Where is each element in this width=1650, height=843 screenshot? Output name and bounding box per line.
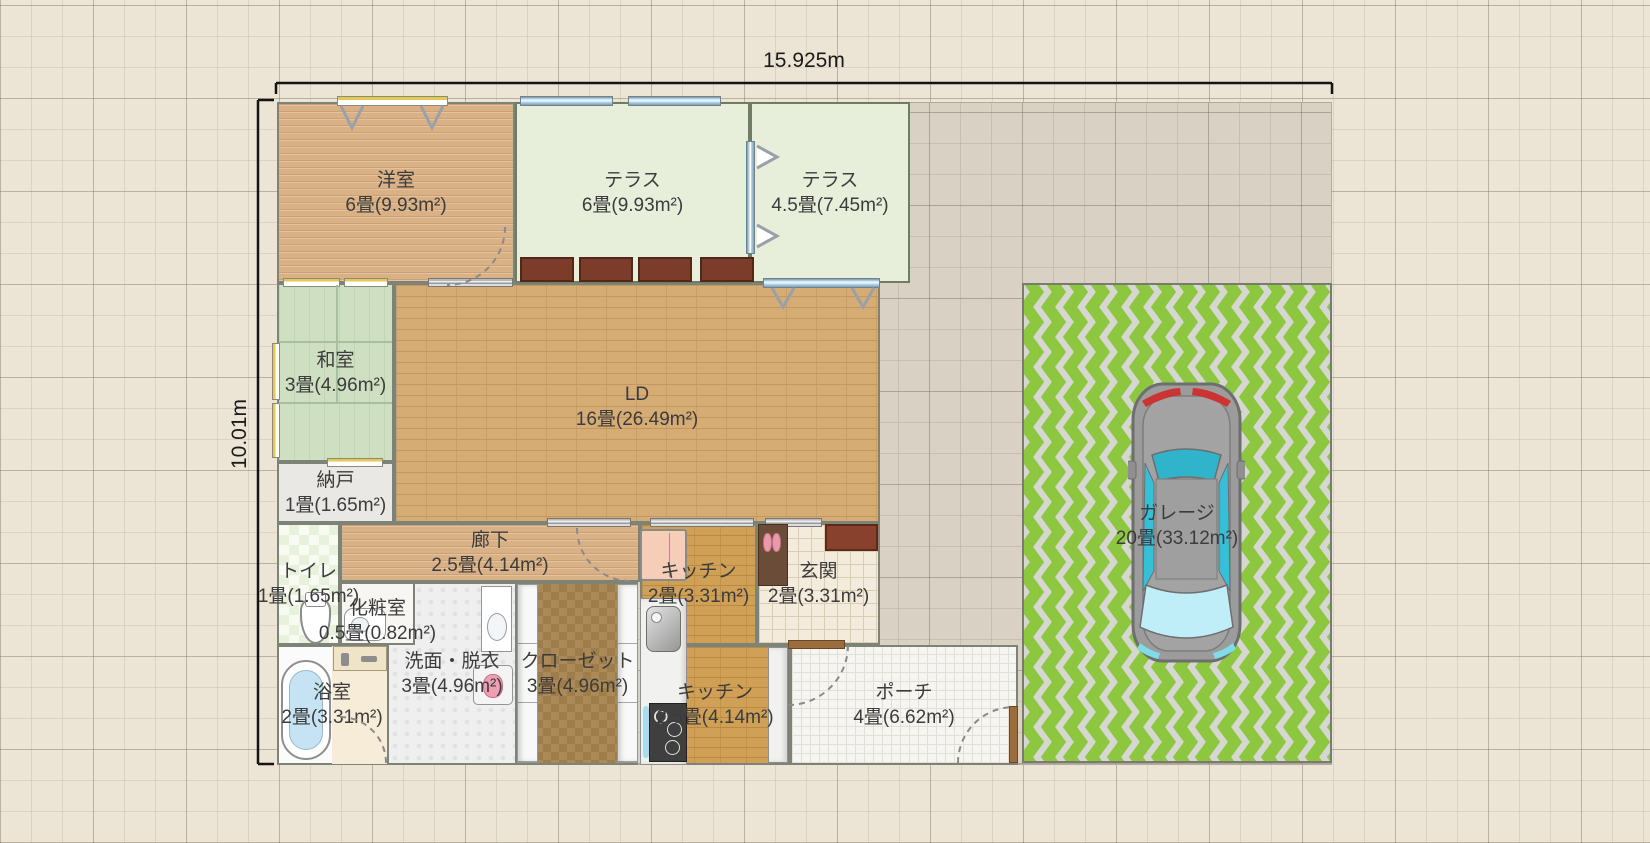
counter-icon[interactable] bbox=[768, 647, 788, 763]
window-blue[interactable] bbox=[763, 278, 880, 288]
car[interactable] bbox=[1128, 375, 1245, 668]
room-rouka[interactable] bbox=[340, 523, 640, 582]
shelf-icon[interactable] bbox=[517, 584, 538, 763]
planter-icon[interactable] bbox=[700, 257, 754, 282]
room-ld[interactable] bbox=[394, 283, 880, 523]
slippers-icon[interactable] bbox=[763, 532, 781, 552]
slide-door[interactable] bbox=[428, 278, 513, 287]
shower-icon[interactable] bbox=[333, 646, 387, 671]
door-bar-h[interactable] bbox=[788, 640, 845, 649]
tatami-line-h-icon bbox=[279, 402, 392, 404]
window-wood[interactable] bbox=[283, 278, 340, 287]
basin-icon[interactable] bbox=[344, 608, 386, 641]
shelf-icon[interactable] bbox=[617, 584, 638, 763]
dimension-width-label: 15.925m bbox=[763, 49, 845, 73]
sink-icon[interactable] bbox=[646, 606, 681, 652]
room-terrace6[interactable] bbox=[515, 102, 750, 283]
slide-door[interactable] bbox=[547, 518, 631, 527]
washer-icon[interactable] bbox=[473, 665, 513, 705]
window-wood-v[interactable] bbox=[272, 343, 280, 400]
room-youshitsu[interactable] bbox=[277, 102, 515, 283]
floorplan-canvas: 洋室6畳(9.93m²)テラス6畳(9.93m²)テラス4.5畳(7.45m²)… bbox=[0, 0, 1650, 843]
room-nando[interactable] bbox=[277, 462, 394, 523]
window-wood[interactable] bbox=[327, 458, 383, 467]
car-top-view bbox=[1128, 375, 1245, 668]
planter-icon[interactable] bbox=[579, 257, 633, 282]
bathtub-icon[interactable] bbox=[281, 660, 331, 760]
window-wood-v[interactable] bbox=[272, 403, 280, 458]
tatami-line-v-icon bbox=[336, 285, 338, 403]
planter-icon[interactable] bbox=[520, 257, 574, 282]
fridge-icon[interactable] bbox=[640, 529, 687, 581]
tatami-line-h-icon bbox=[279, 341, 392, 343]
window-blue-v[interactable] bbox=[746, 141, 755, 254]
door-bar-v[interactable] bbox=[1009, 706, 1018, 763]
window-blue[interactable] bbox=[520, 96, 613, 106]
stove-icon[interactable] bbox=[649, 703, 687, 762]
window-wood[interactable] bbox=[337, 96, 448, 106]
planter-icon[interactable] bbox=[638, 257, 692, 282]
step-icon[interactable] bbox=[825, 524, 878, 551]
window-wood[interactable] bbox=[344, 278, 388, 287]
vanity-icon[interactable] bbox=[481, 586, 512, 652]
room-porch[interactable] bbox=[790, 645, 1018, 765]
window-blue[interactable] bbox=[628, 96, 721, 106]
slide-door[interactable] bbox=[650, 518, 754, 527]
dimension-height-label: 10.01m bbox=[228, 399, 252, 469]
room-terrace45[interactable] bbox=[750, 102, 910, 283]
